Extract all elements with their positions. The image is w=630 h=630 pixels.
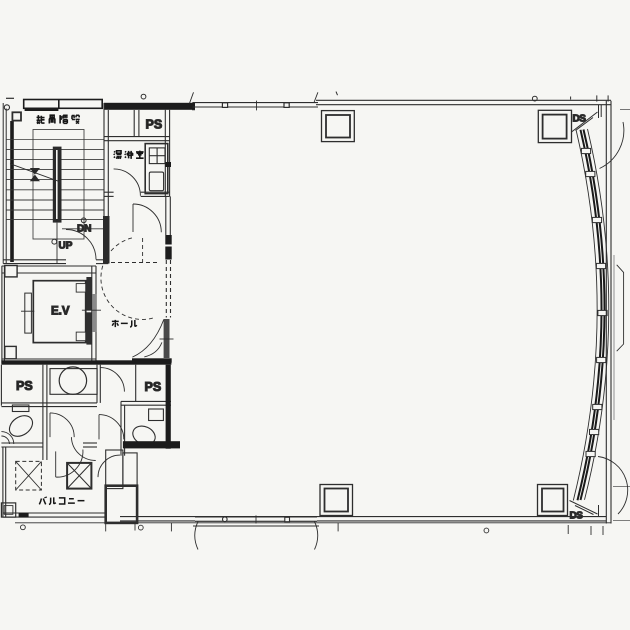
svg-text:UP: UP <box>59 241 73 252</box>
svg-text:PS: PS <box>146 118 163 132</box>
svg-text:E.V: E.V <box>51 306 70 318</box>
svg-text:DS: DS <box>573 114 587 125</box>
svg-text:DS: DS <box>570 511 584 522</box>
svg-text:PS: PS <box>16 379 33 393</box>
svg-text:PS: PS <box>145 380 162 394</box>
